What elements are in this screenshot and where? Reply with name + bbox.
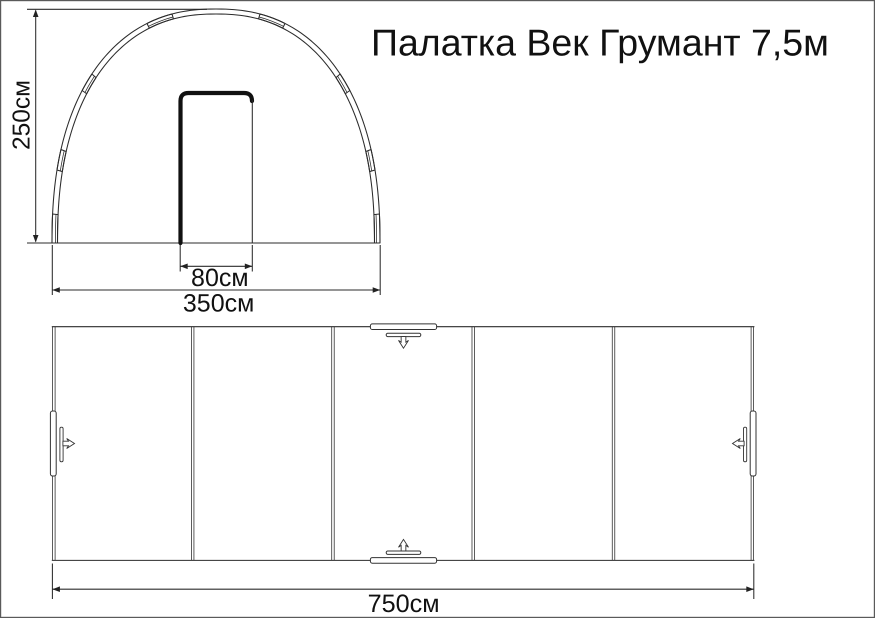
svg-text:80см: 80см	[191, 264, 249, 292]
svg-text:750см: 750см	[368, 590, 440, 618]
svg-text:350см: 350см	[183, 290, 254, 318]
svg-text:Палатка Век Грумант 7,5м: Палатка Век Грумант 7,5м	[371, 22, 829, 64]
svg-text:250см: 250см	[9, 80, 36, 150]
